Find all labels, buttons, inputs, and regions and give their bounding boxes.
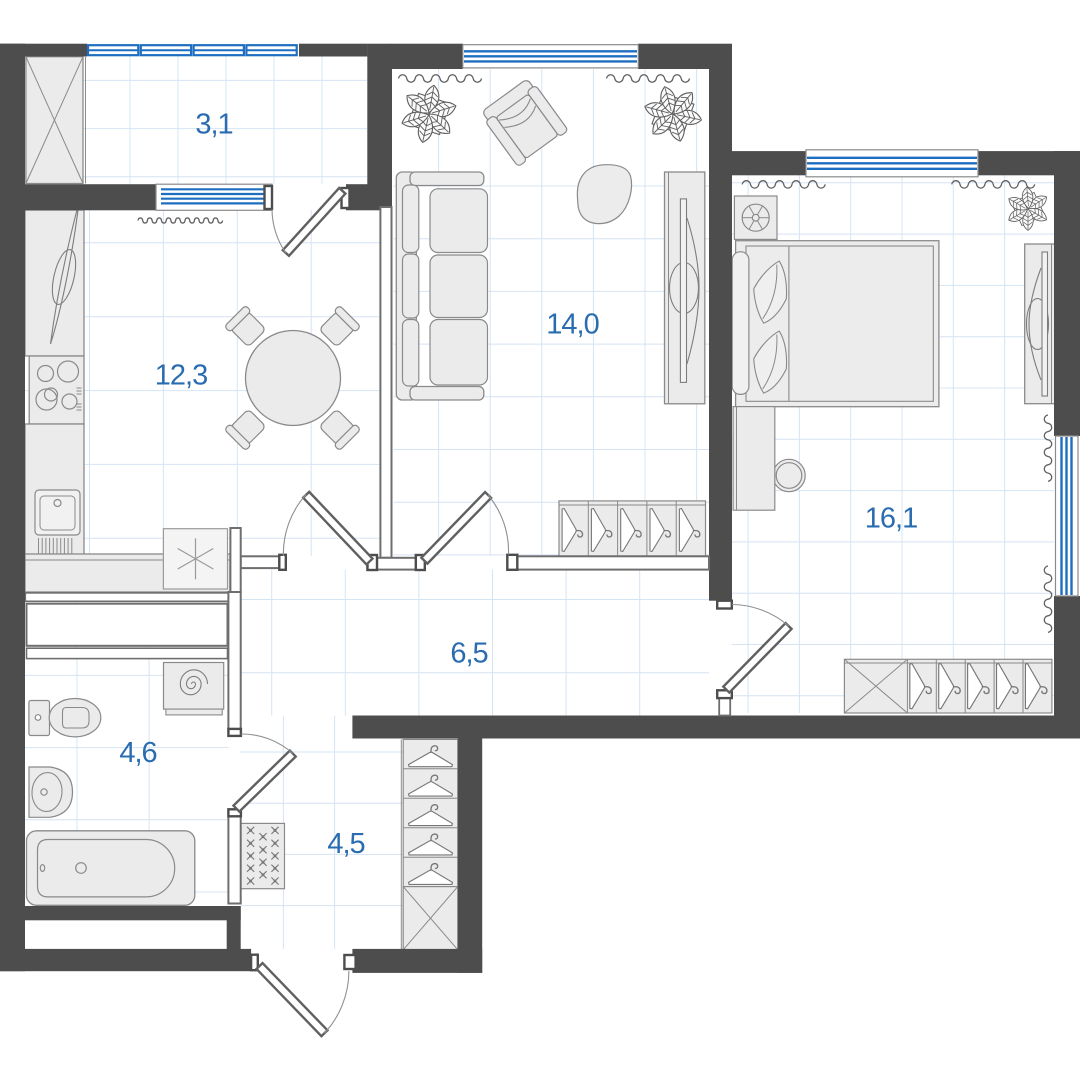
svg-text:12,3: 12,3 [155, 359, 207, 391]
svg-text:14,0: 14,0 [546, 308, 598, 340]
svg-text:4,5: 4,5 [327, 828, 364, 860]
svg-text:4,6: 4,6 [119, 737, 156, 769]
svg-text:3,1: 3,1 [195, 109, 232, 141]
svg-text:6,5: 6,5 [450, 637, 487, 669]
svg-text:16,1: 16,1 [865, 503, 917, 535]
